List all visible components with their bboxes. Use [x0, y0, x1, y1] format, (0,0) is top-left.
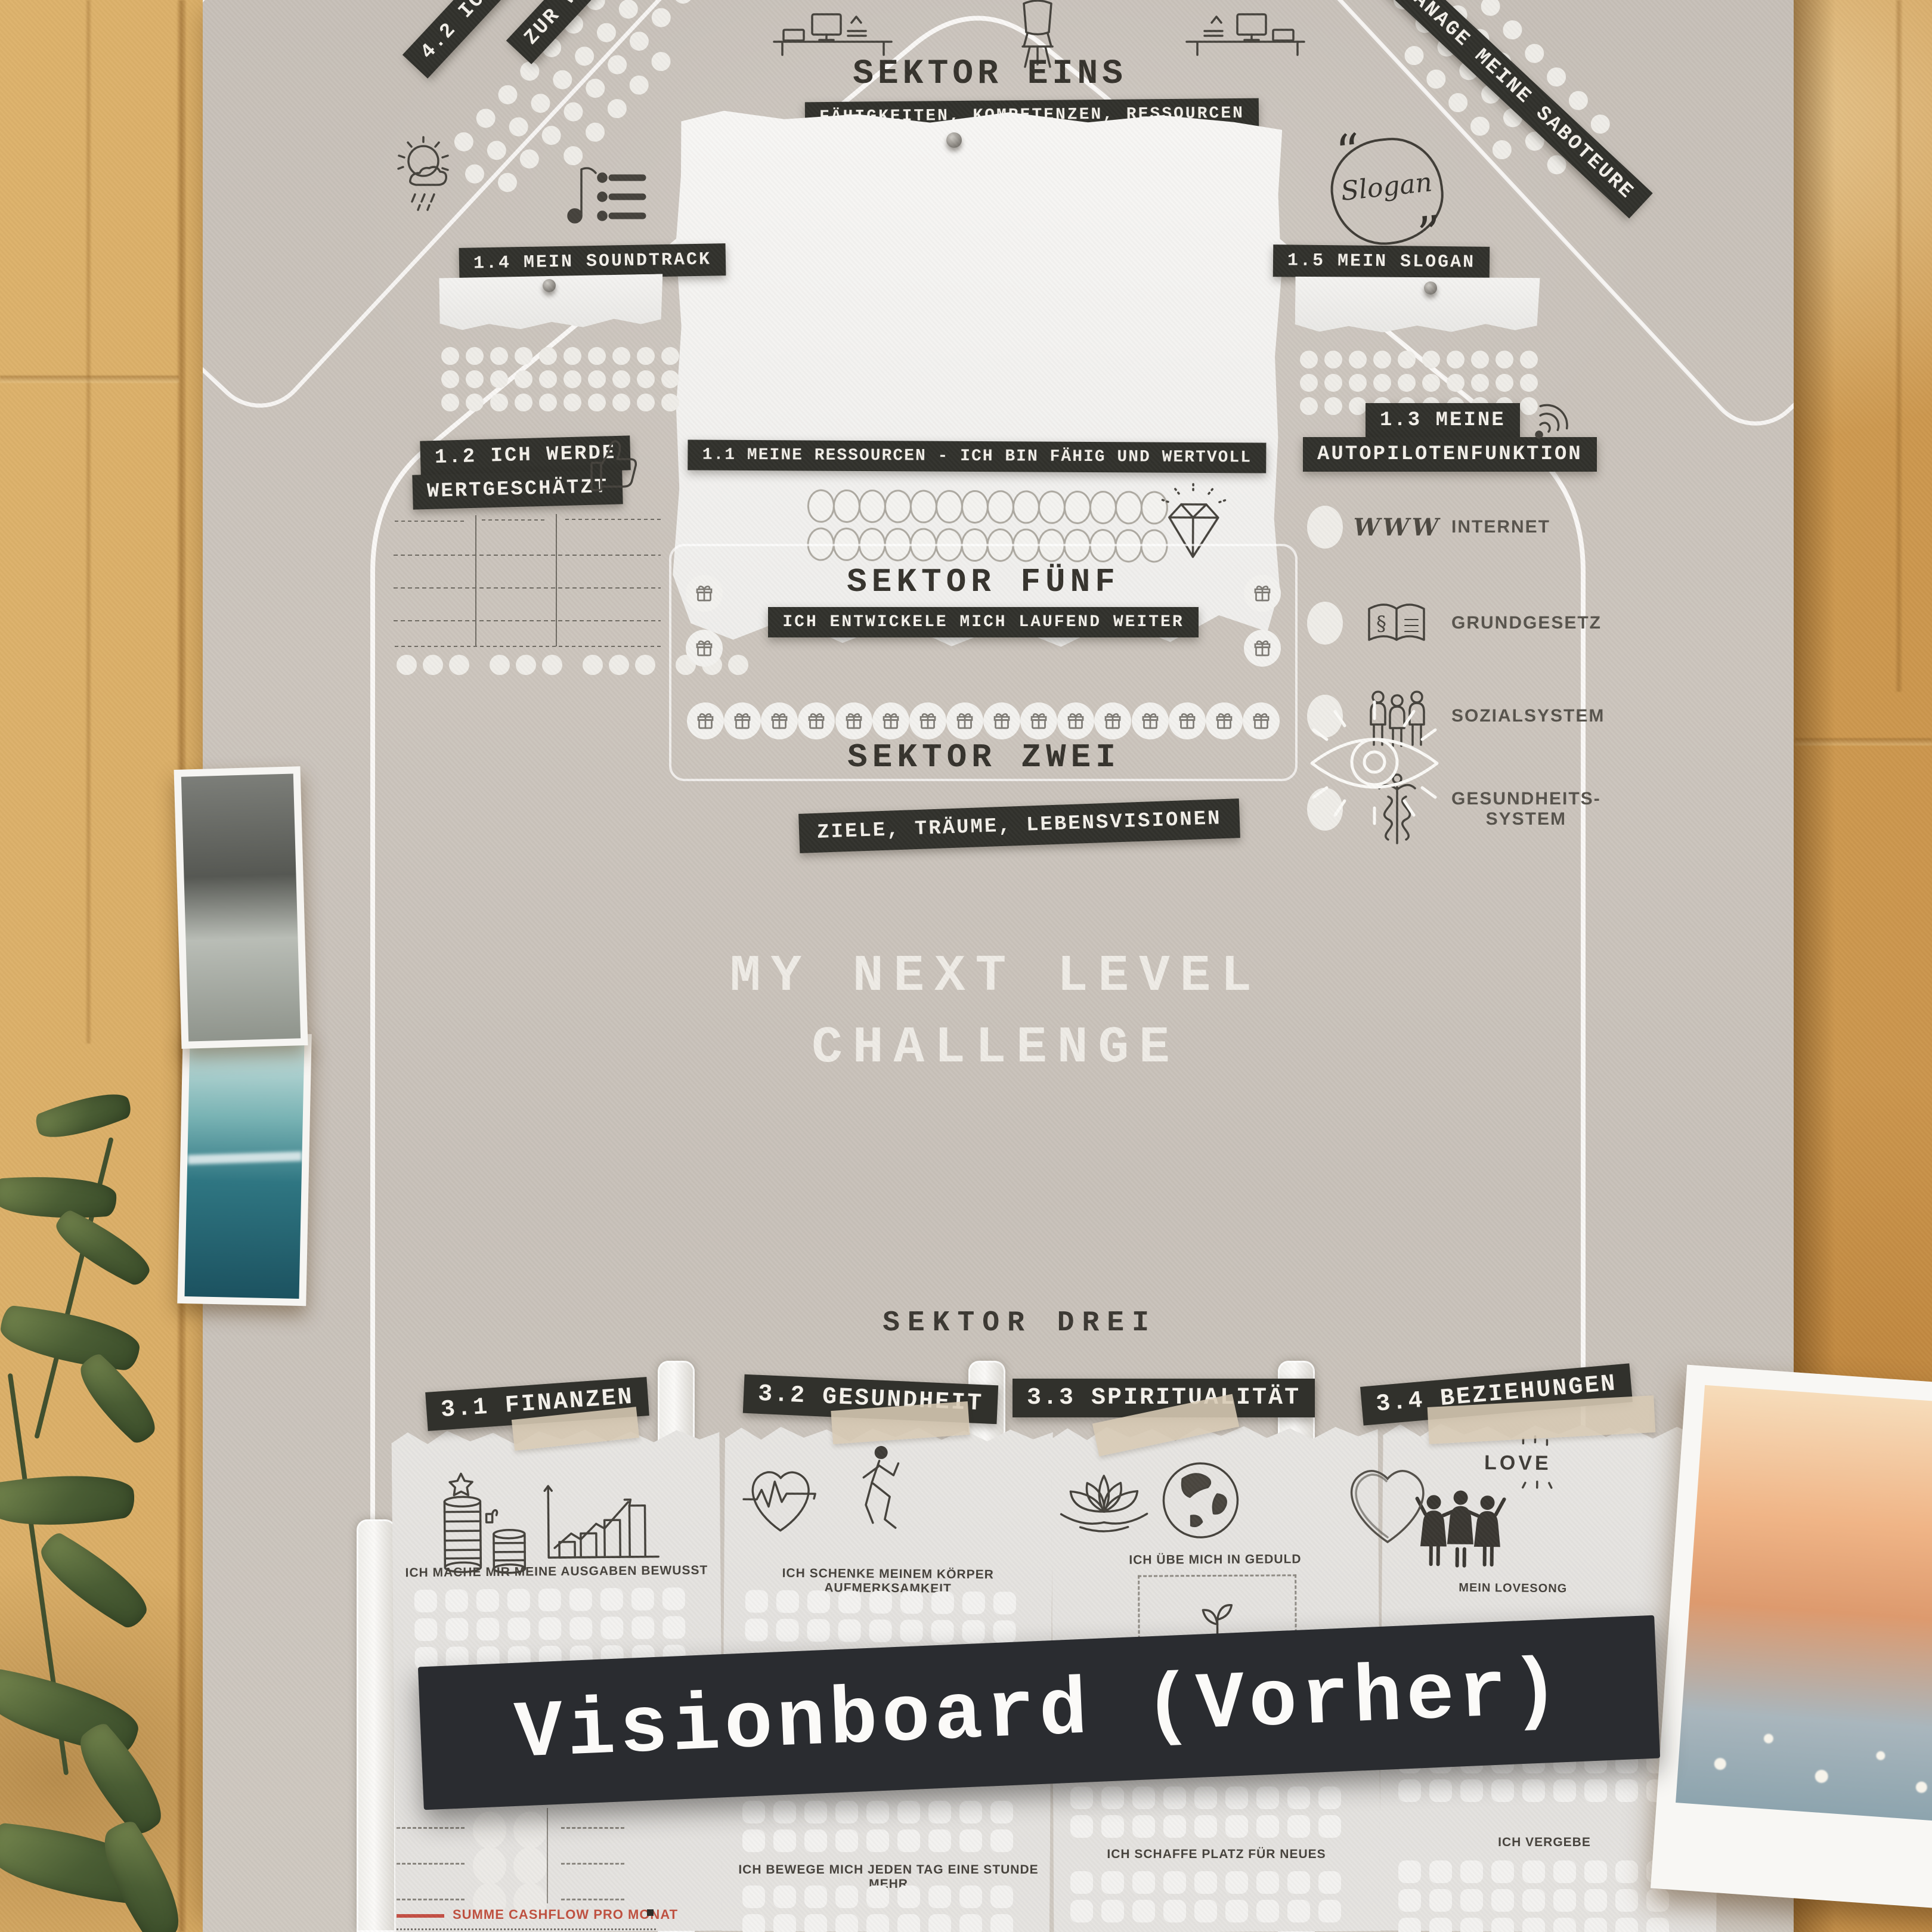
pocket-tab — [357, 1519, 396, 1932]
bar-chart-icon — [540, 1480, 662, 1571]
gift-icon — [946, 702, 983, 739]
goal-table-sketch — [392, 510, 664, 651]
globe-icon — [1157, 1457, 1244, 1544]
center-title-line1: MY NEXT LEVEL — [692, 947, 1300, 1005]
gift-icon — [909, 702, 946, 739]
sun-cloud-rain-icon — [392, 135, 467, 218]
marker-dot — [1307, 602, 1343, 645]
autopilot-label-1: 1.3 MEINE — [1366, 403, 1520, 438]
plant — [0, 1061, 286, 1932]
plant-leaf — [0, 1462, 138, 1538]
slogan-label: 1.5 MEIN SLOGAN — [1273, 244, 1490, 279]
gift-icon — [1244, 630, 1281, 667]
gift-col-right — [1244, 575, 1281, 667]
card-footer-dots — [742, 1801, 1013, 1852]
gift-icon — [724, 702, 761, 739]
autopilot-text: SOZIALSYSTEM — [1451, 706, 1605, 726]
plant-leaf — [0, 1305, 143, 1371]
heart-icon — [1333, 1454, 1443, 1552]
sector-five-subtitle: ICH ENTWICKELE MICH LAUFEND WEITER — [768, 607, 1198, 637]
law-book-icon: § — [1363, 593, 1432, 653]
cashflow-marker — [397, 1914, 444, 1918]
autopilot-text: GESUNDHEITS- — [1451, 789, 1601, 809]
gift-icon — [835, 702, 872, 739]
sector-five-title: SEKTOR FÜNF — [671, 563, 1295, 601]
scene: 4.2 ICH NUTZE ZUR WE MANAGE MEINE SABOTE… — [0, 0, 1932, 1932]
desk-computer-icon — [1181, 5, 1309, 57]
visionboard-poster: 4.2 ICH NUTZE ZUR WE MANAGE MEINE SABOTE… — [203, 0, 1794, 1932]
autopilot-row-grundgesetz: § GRUNDGESETZ — [1307, 593, 1602, 653]
pin-icon — [946, 132, 962, 148]
soundtrack-label: 1.4 MEIN SOUNDTRACK — [459, 243, 726, 280]
card-footer-dots — [1070, 1871, 1341, 1922]
plant-leaf — [47, 1207, 158, 1289]
wall-groove — [85, 0, 91, 1044]
music-playlist-icon — [561, 154, 653, 231]
wall-groove — [0, 376, 179, 383]
card-footer-dots — [1070, 1787, 1341, 1838]
sector-one-title: SEKTOR EINS — [811, 55, 1169, 94]
gift-icon — [1243, 702, 1280, 739]
soundtrack-chip-wrap: 1.4 MEIN SOUNDTRACK — [459, 246, 674, 278]
slogan-chip-wrap: 1.5 MEIN SLOGAN — [1273, 246, 1488, 278]
pin-icon — [1424, 281, 1437, 295]
polaroid-photo — [1651, 1365, 1932, 1911]
photo-image — [181, 773, 301, 1041]
card-footer-dots — [742, 1885, 1013, 1932]
wall-photo-top — [174, 766, 308, 1049]
www-icon: WWW — [1358, 513, 1436, 541]
gift-row — [687, 702, 1280, 739]
soundtrack-dots — [441, 347, 679, 411]
sector-two-subtitle-wrap: ZIELE, TRÄUME, LEBENSVISIONEN — [799, 806, 1169, 846]
gift-icon — [686, 575, 723, 612]
card-caption: ICH ÜBE MICH IN GEDULD — [1058, 1552, 1373, 1568]
card-caption: ICH MACHE MIR MEINE AUSGABEN BEWUSST — [398, 1563, 714, 1581]
svg-text:§: § — [1376, 612, 1386, 636]
resources-label: 1.1 MEINE RESSOURCEN - ICH BIN FÄHIG UND… — [688, 439, 1267, 473]
polaroid-image — [1676, 1385, 1932, 1822]
wall-groove — [1895, 0, 1902, 692]
gift-icon — [1057, 702, 1094, 739]
autopilot-row-internet: WWW INTERNET — [1307, 506, 1550, 549]
marker-dot — [1307, 506, 1343, 549]
cashflow-square — [647, 1909, 654, 1916]
card-caption: MEIN LOVESONG — [1388, 1581, 1638, 1597]
center-title: MY NEXT LEVEL CHALLENGE — [692, 947, 1300, 1077]
gift-icon — [872, 702, 909, 739]
gift-icon — [1206, 702, 1243, 739]
runner-icon — [846, 1441, 909, 1552]
plant-leaf — [32, 1080, 135, 1150]
autopilot-text: INTERNET — [1451, 517, 1550, 537]
gift-icon — [1094, 702, 1131, 739]
resources-chip-wrap: 1.1 MEINE RESSOURCEN - ICH BIN FÄHIG UND… — [673, 439, 1280, 473]
gift-icon — [983, 702, 1020, 739]
banner-text: Visionboard (Vorher) — [513, 1645, 1565, 1781]
center-title-line2: CHALLENGE — [692, 1018, 1300, 1077]
pin-icon — [543, 279, 556, 292]
plant-leaf — [29, 1529, 159, 1633]
gift-icon — [687, 702, 724, 739]
eye-icon — [1297, 683, 1452, 844]
card-dots — [745, 1590, 1016, 1643]
gift-icon — [1169, 702, 1206, 739]
finanzen-ledger: SUMME CASHFLOW PRO MONAT — [397, 1812, 719, 1932]
gift-icon — [1244, 575, 1281, 612]
sector-two-title: SEKTOR ZWEI — [799, 738, 1169, 776]
lotus-icon — [1056, 1470, 1152, 1539]
cashflow-label: SUMME CASHFLOW PRO MONAT — [453, 1907, 678, 1922]
gift-col-left — [686, 575, 723, 667]
card-footer-dots — [1398, 1860, 1669, 1932]
card-footer-caption: ICH SCHAFFE PLATZ FÜR NEUES — [1055, 1847, 1377, 1862]
thumbs-up-icon — [584, 428, 644, 497]
heart-ekg-icon — [738, 1457, 825, 1541]
desk-computer-icon — [769, 5, 897, 57]
sector-three-title: SEKTOR DREI — [835, 1307, 1205, 1339]
gift-icon — [686, 630, 723, 667]
gift-icon — [1132, 702, 1169, 739]
gift-icon — [761, 702, 798, 739]
gift-icon — [1020, 702, 1057, 739]
gift-icon — [798, 702, 835, 739]
autopilot-text: GRUNDGESETZ — [1451, 613, 1602, 633]
autopilot-text: SYSTEM — [1451, 809, 1601, 829]
